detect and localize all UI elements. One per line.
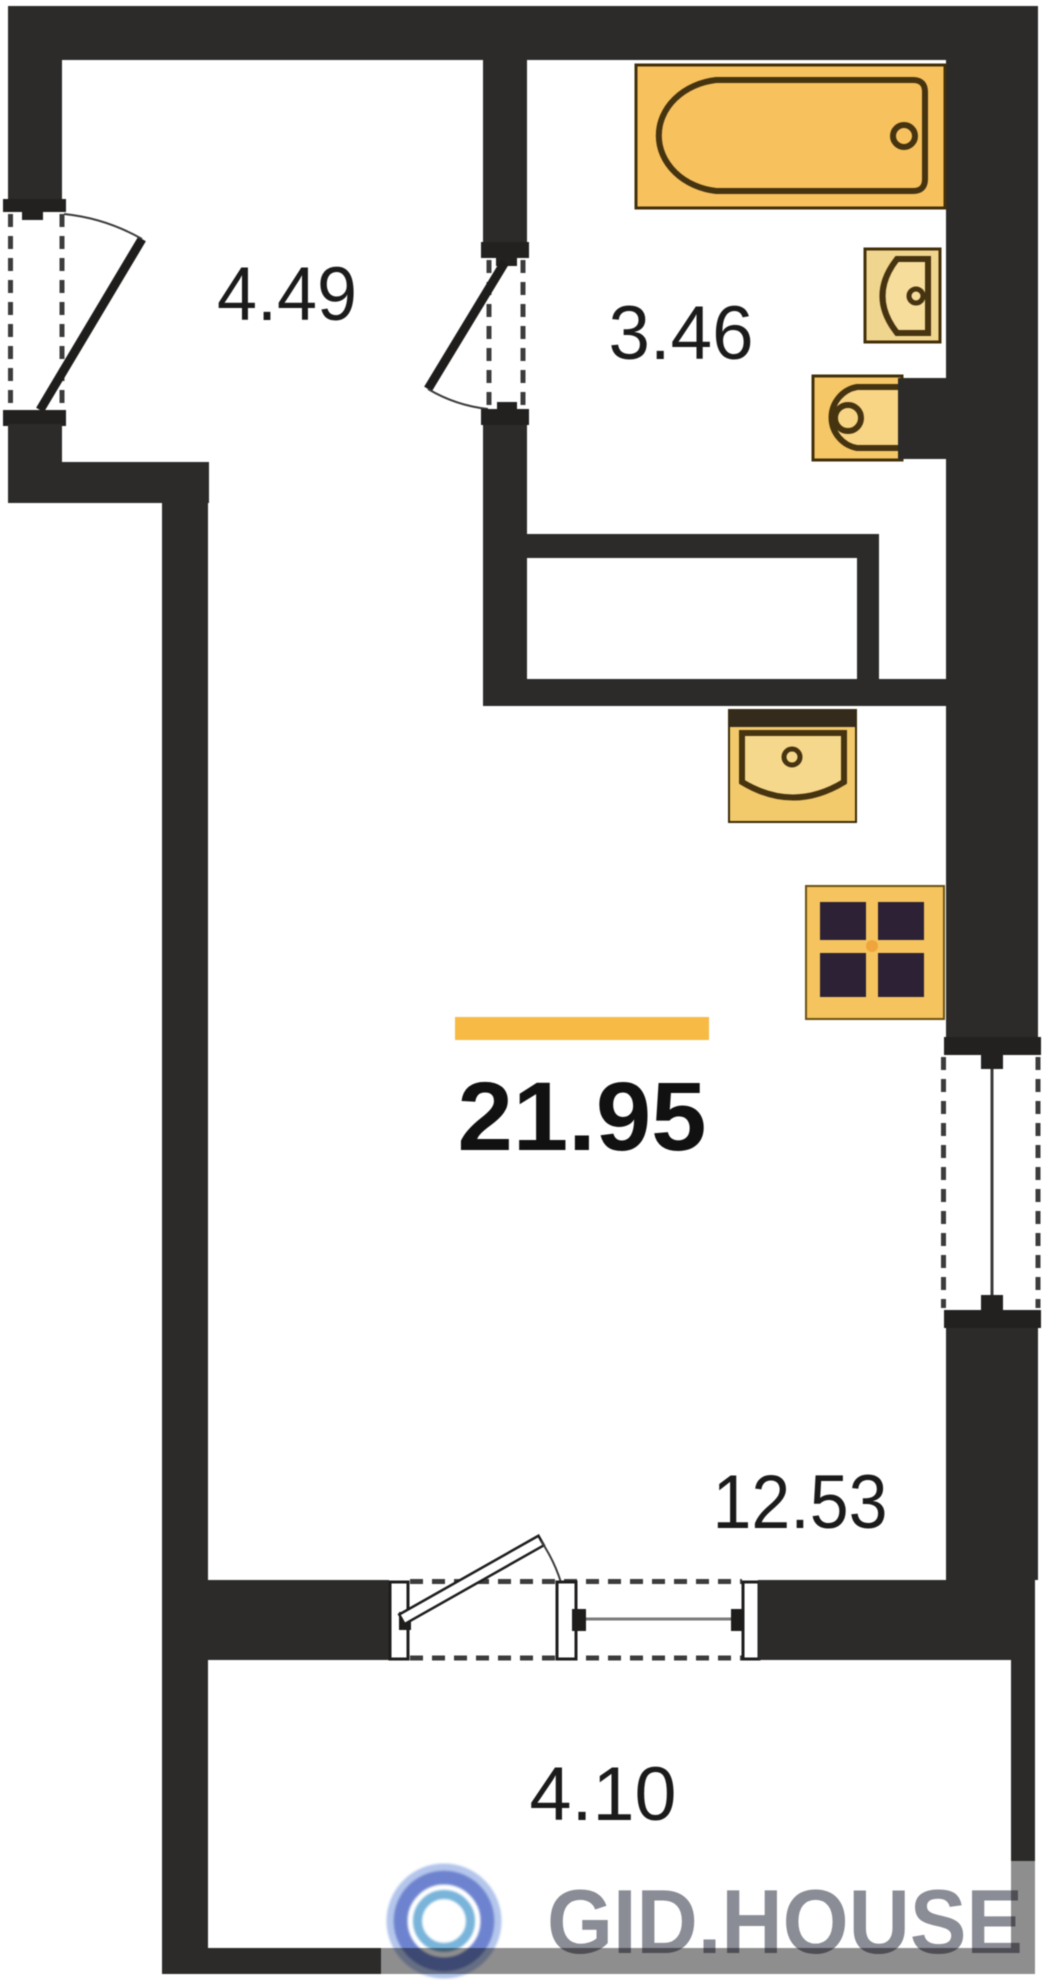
svg-text:12.53: 12.53 [713, 1460, 888, 1545]
svg-text:4.49: 4.49 [217, 252, 357, 337]
svg-text:21.95: 21.95 [458, 1062, 707, 1171]
svg-text:GID.HOUSE: GID.HOUSE [547, 1872, 1023, 1973]
svg-text:3.46: 3.46 [609, 291, 754, 376]
svg-text:4.10: 4.10 [530, 1752, 677, 1837]
